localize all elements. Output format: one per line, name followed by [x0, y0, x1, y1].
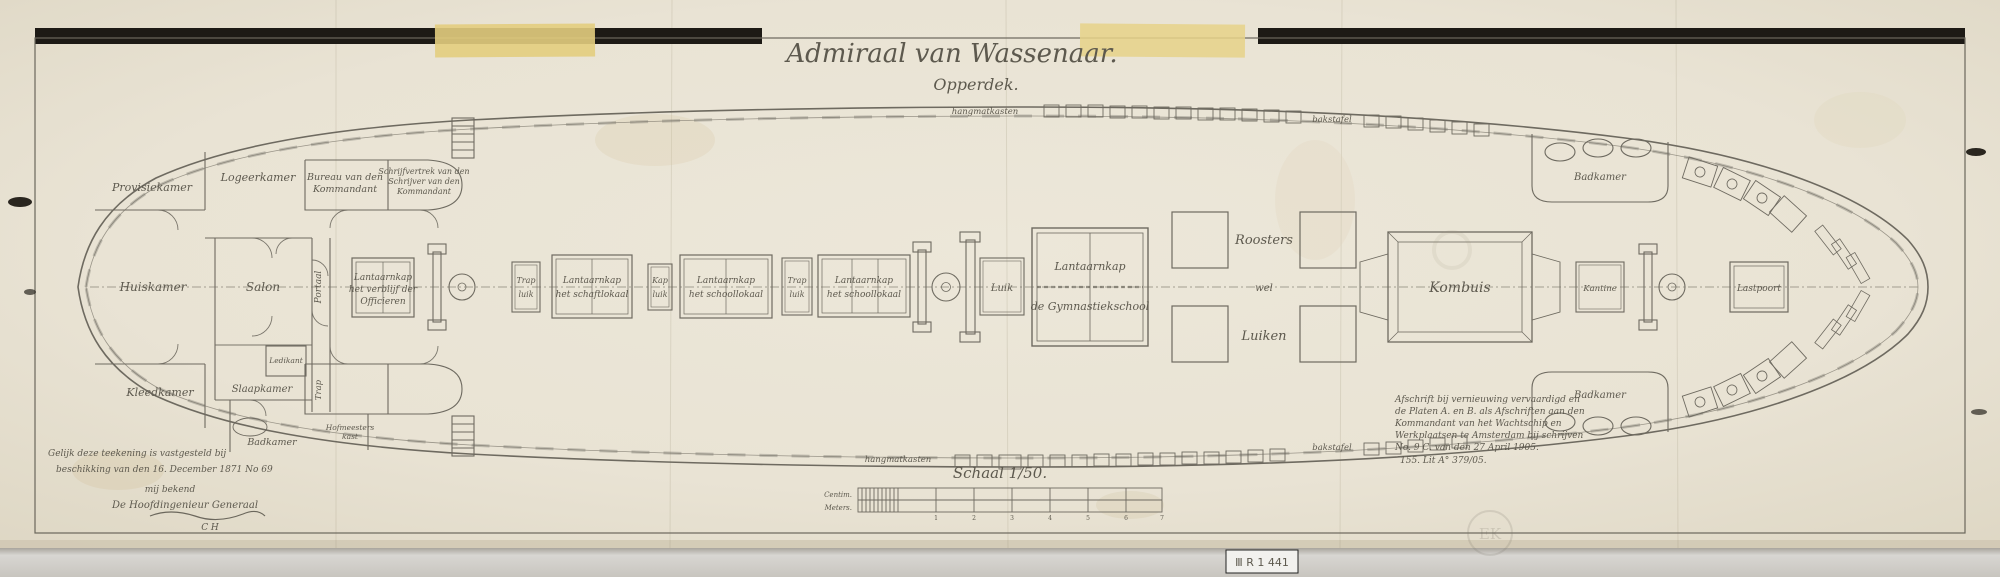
room-kleedkamer-label: Kleedkamer: [125, 386, 194, 399]
skylight-2-label-1: Lantaarnkap: [696, 276, 755, 286]
note-left-line3: mij bekend: [145, 485, 196, 495]
page-subtitle: Opperdek.: [933, 75, 1018, 94]
scale-number: 6: [1124, 515, 1128, 522]
scale-unit-top: Centim.: [824, 491, 852, 499]
note-left-line5: C H: [201, 523, 219, 533]
hangmat-bottom-label: hangmatkasten: [865, 455, 932, 465]
kapluik-label-2: luik: [652, 290, 667, 299]
note-left-line4: De Hoofdingenieur Generaal: [111, 500, 258, 511]
roosters-label: Roosters: [1234, 233, 1293, 248]
room-ledikant-label: Ledikant: [268, 356, 303, 365]
bakstafel-top-label: bakstafel: [1312, 115, 1352, 125]
lastpoort-label: Lastpoort: [1736, 284, 1781, 294]
note-right-line4: Werkplaatsen te Amsterdam bij schrijven: [1395, 431, 1584, 441]
room-hofmeesters-label-2: kast: [342, 432, 359, 441]
note-left-line1: Gelijk deze teekening is vastgesteld bij: [48, 449, 226, 459]
trapluik-1-label-2: luik: [518, 290, 533, 299]
gym-label-1: Lantaarnkap: [1053, 260, 1125, 273]
scale-number: 2: [972, 515, 976, 522]
watermark-text: EK: [1479, 525, 1502, 543]
room-schrijfvertrek-label-2: Schrijver van den: [388, 177, 460, 186]
luik-label: Luik: [990, 283, 1013, 294]
skylight-officers-label-1: Lantaarnkap: [353, 273, 412, 283]
room-schrijfvertrek-label-1: Schrijfvertrek van den: [378, 167, 469, 176]
note-right-line3: Kommandant van het Wachtschip en: [1394, 419, 1562, 429]
tape-left: [435, 23, 595, 57]
trapluik-1-label-1: Trap: [516, 276, 535, 285]
scale-number: 4: [1048, 515, 1052, 522]
top-border-bar-left: [35, 28, 762, 44]
scale-number: 1: [934, 515, 938, 522]
scale-number: 7: [1160, 515, 1164, 522]
luiken-label: Luiken: [1240, 329, 1286, 344]
room-bureau-label-1: Bureau van den: [306, 172, 383, 183]
top-border-bar-right: [1258, 28, 1965, 44]
skylight-3-label-1: Lantaarnkap: [834, 276, 893, 286]
stamp-box: Ⅲ R 1 441: [1226, 550, 1298, 573]
skylight-2-label-2: het schoollokaal: [689, 290, 763, 300]
gym-label-2: de Gymnastiekschool: [1031, 300, 1150, 313]
room-provisiekamer-label: Provisiekamer: [111, 181, 193, 194]
room-logeerkamer-label: Logeerkamer: [220, 171, 296, 184]
skylight-3-label-2: het schoollokaal: [827, 290, 901, 300]
room-badkamer-label: Badkamer: [246, 437, 298, 448]
scale-unit-bottom: Meters.: [824, 504, 852, 512]
scale-number: 5: [1086, 515, 1090, 522]
bakstafel-bottom-label: bakstafel: [1312, 443, 1352, 453]
note-right-line6: 155. Lit A° 379/05.: [1400, 456, 1487, 466]
note-right-line5: No. 9 C. van den 27 April 1905.: [1394, 443, 1539, 453]
room-slaapkamer-label: Slaapkamer: [232, 384, 294, 395]
skylight-officers-label-2: het verblijf der: [349, 285, 418, 295]
wel-label: wel: [1255, 283, 1273, 294]
scanner-backing: [0, 548, 2000, 577]
trapluik-2-label-1: Trap: [787, 276, 806, 285]
plan-svg: Admiraal van Wassenaar. Opperdek.: [0, 0, 2000, 577]
room-trap-label: Trap: [314, 379, 324, 400]
skylight-1-label-1: Lantaarnkap: [562, 276, 621, 286]
scale-label: Schaal 1/50.: [953, 464, 1047, 482]
paper-bottom-edge: [0, 540, 2000, 548]
room-portaal-label: Portaal: [314, 271, 324, 305]
page-title: Admiraal van Wassenaar.: [784, 39, 1117, 69]
note-left-line2: beschikking van den 16. December 1871 No…: [56, 465, 273, 475]
badkamer-bottom-label: Badkamer: [1573, 390, 1627, 401]
kapluik-label-1: Kap: [651, 276, 668, 285]
room-hofmeesters-label-1: Hofmeesters: [325, 423, 375, 432]
skylight-1-label-2: het schaftlokaal: [556, 290, 629, 300]
note-right-line2: de Platen A. en B. als Afschriften aan d…: [1395, 407, 1585, 417]
kantine-label: Kantine: [1582, 284, 1617, 294]
kombuis-label: Kombuis: [1428, 280, 1490, 296]
trapluik-2-label-2: luik: [789, 290, 804, 299]
badkamer-top-label: Badkamer: [1573, 172, 1627, 183]
hangmat-top-label: hangmatkasten: [952, 107, 1019, 117]
stamp-text: Ⅲ R 1 441: [1235, 556, 1289, 569]
note-right-line1: Afschrift bij vernieuwing vervaardigd en: [1394, 395, 1580, 405]
room-salon-label: Salon: [246, 280, 280, 294]
scanned-ship-plan: Admiraal van Wassenaar. Opperdek.: [0, 0, 2000, 577]
scale-number: 3: [1010, 515, 1014, 522]
room-huiskamer-label: Huiskamer: [119, 280, 188, 294]
room-bureau-label-2: Kommandant: [312, 184, 377, 195]
skylight-officers-label-3: Officieren: [360, 297, 406, 307]
room-schrijfvertrek-label-3: Kommandant: [396, 187, 452, 196]
